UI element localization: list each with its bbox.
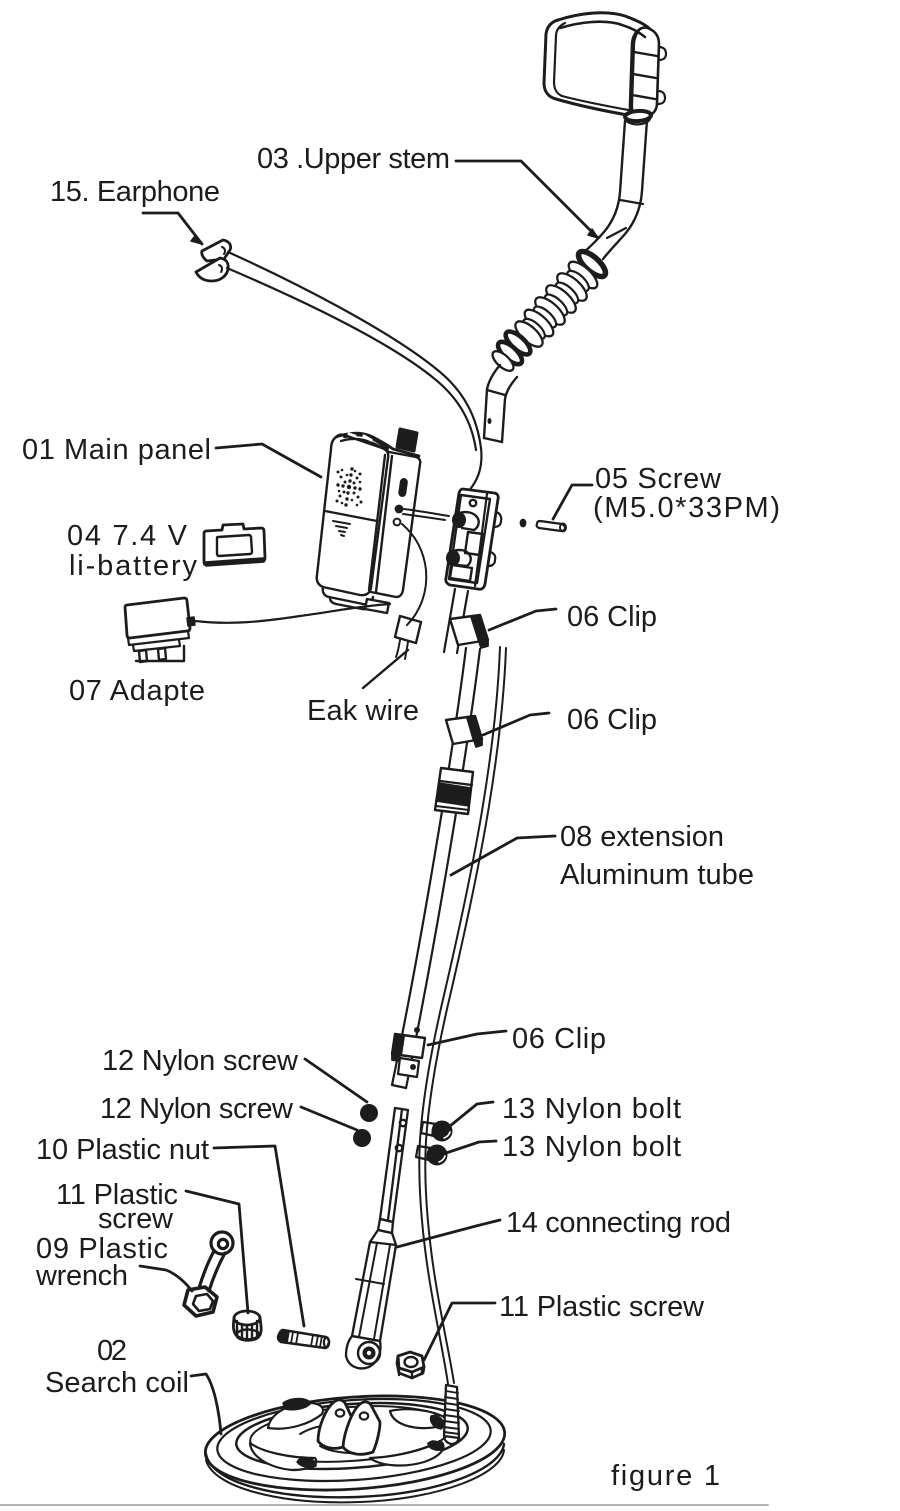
svg-text:06 Clip: 06 Clip: [567, 601, 657, 633]
svg-text:06 Clip: 06 Clip: [512, 1023, 606, 1055]
svg-text:Search coil: Search coil: [45, 1367, 189, 1399]
svg-text:screw: screw: [98, 1203, 174, 1235]
svg-text:Eak wire: Eak wire: [307, 695, 419, 727]
svg-text:li-battery: li-battery: [69, 550, 198, 582]
svg-text:12 Nylon screw: 12 Nylon screw: [100, 1093, 294, 1125]
svg-text:14 connecting rod: 14 connecting rod: [506, 1207, 731, 1239]
svg-text:05 Screw: 05 Screw: [595, 463, 722, 495]
svg-text:(M5.0*33PM): (M5.0*33PM): [593, 492, 780, 524]
svg-text:08 extension: 08 extension: [560, 821, 724, 853]
svg-text:01 Main panel: 01 Main panel: [22, 434, 211, 466]
svg-text:Aluminum tube: Aluminum tube: [560, 859, 754, 891]
svg-text:04 7.4 V: 04 7.4 V: [67, 520, 188, 552]
svg-text:wrench: wrench: [35, 1260, 128, 1292]
svg-text:10 Plastic nut: 10 Plastic nut: [36, 1134, 209, 1166]
svg-text:12 Nylon screw: 12 Nylon screw: [102, 1045, 299, 1077]
svg-text:02: 02: [97, 1335, 127, 1367]
svg-text:03 .Upper stem: 03 .Upper stem: [257, 143, 450, 175]
svg-text:11 Plastic screw: 11 Plastic screw: [499, 1291, 705, 1323]
svg-text:13 Nylon bolt: 13 Nylon bolt: [502, 1131, 681, 1163]
svg-text:06 Clip: 06 Clip: [567, 704, 657, 736]
svg-text:13 Nylon bolt: 13 Nylon bolt: [502, 1093, 681, 1125]
svg-text:15. Earphone: 15. Earphone: [50, 176, 220, 208]
svg-text:07 Adapte: 07 Adapte: [69, 675, 205, 707]
